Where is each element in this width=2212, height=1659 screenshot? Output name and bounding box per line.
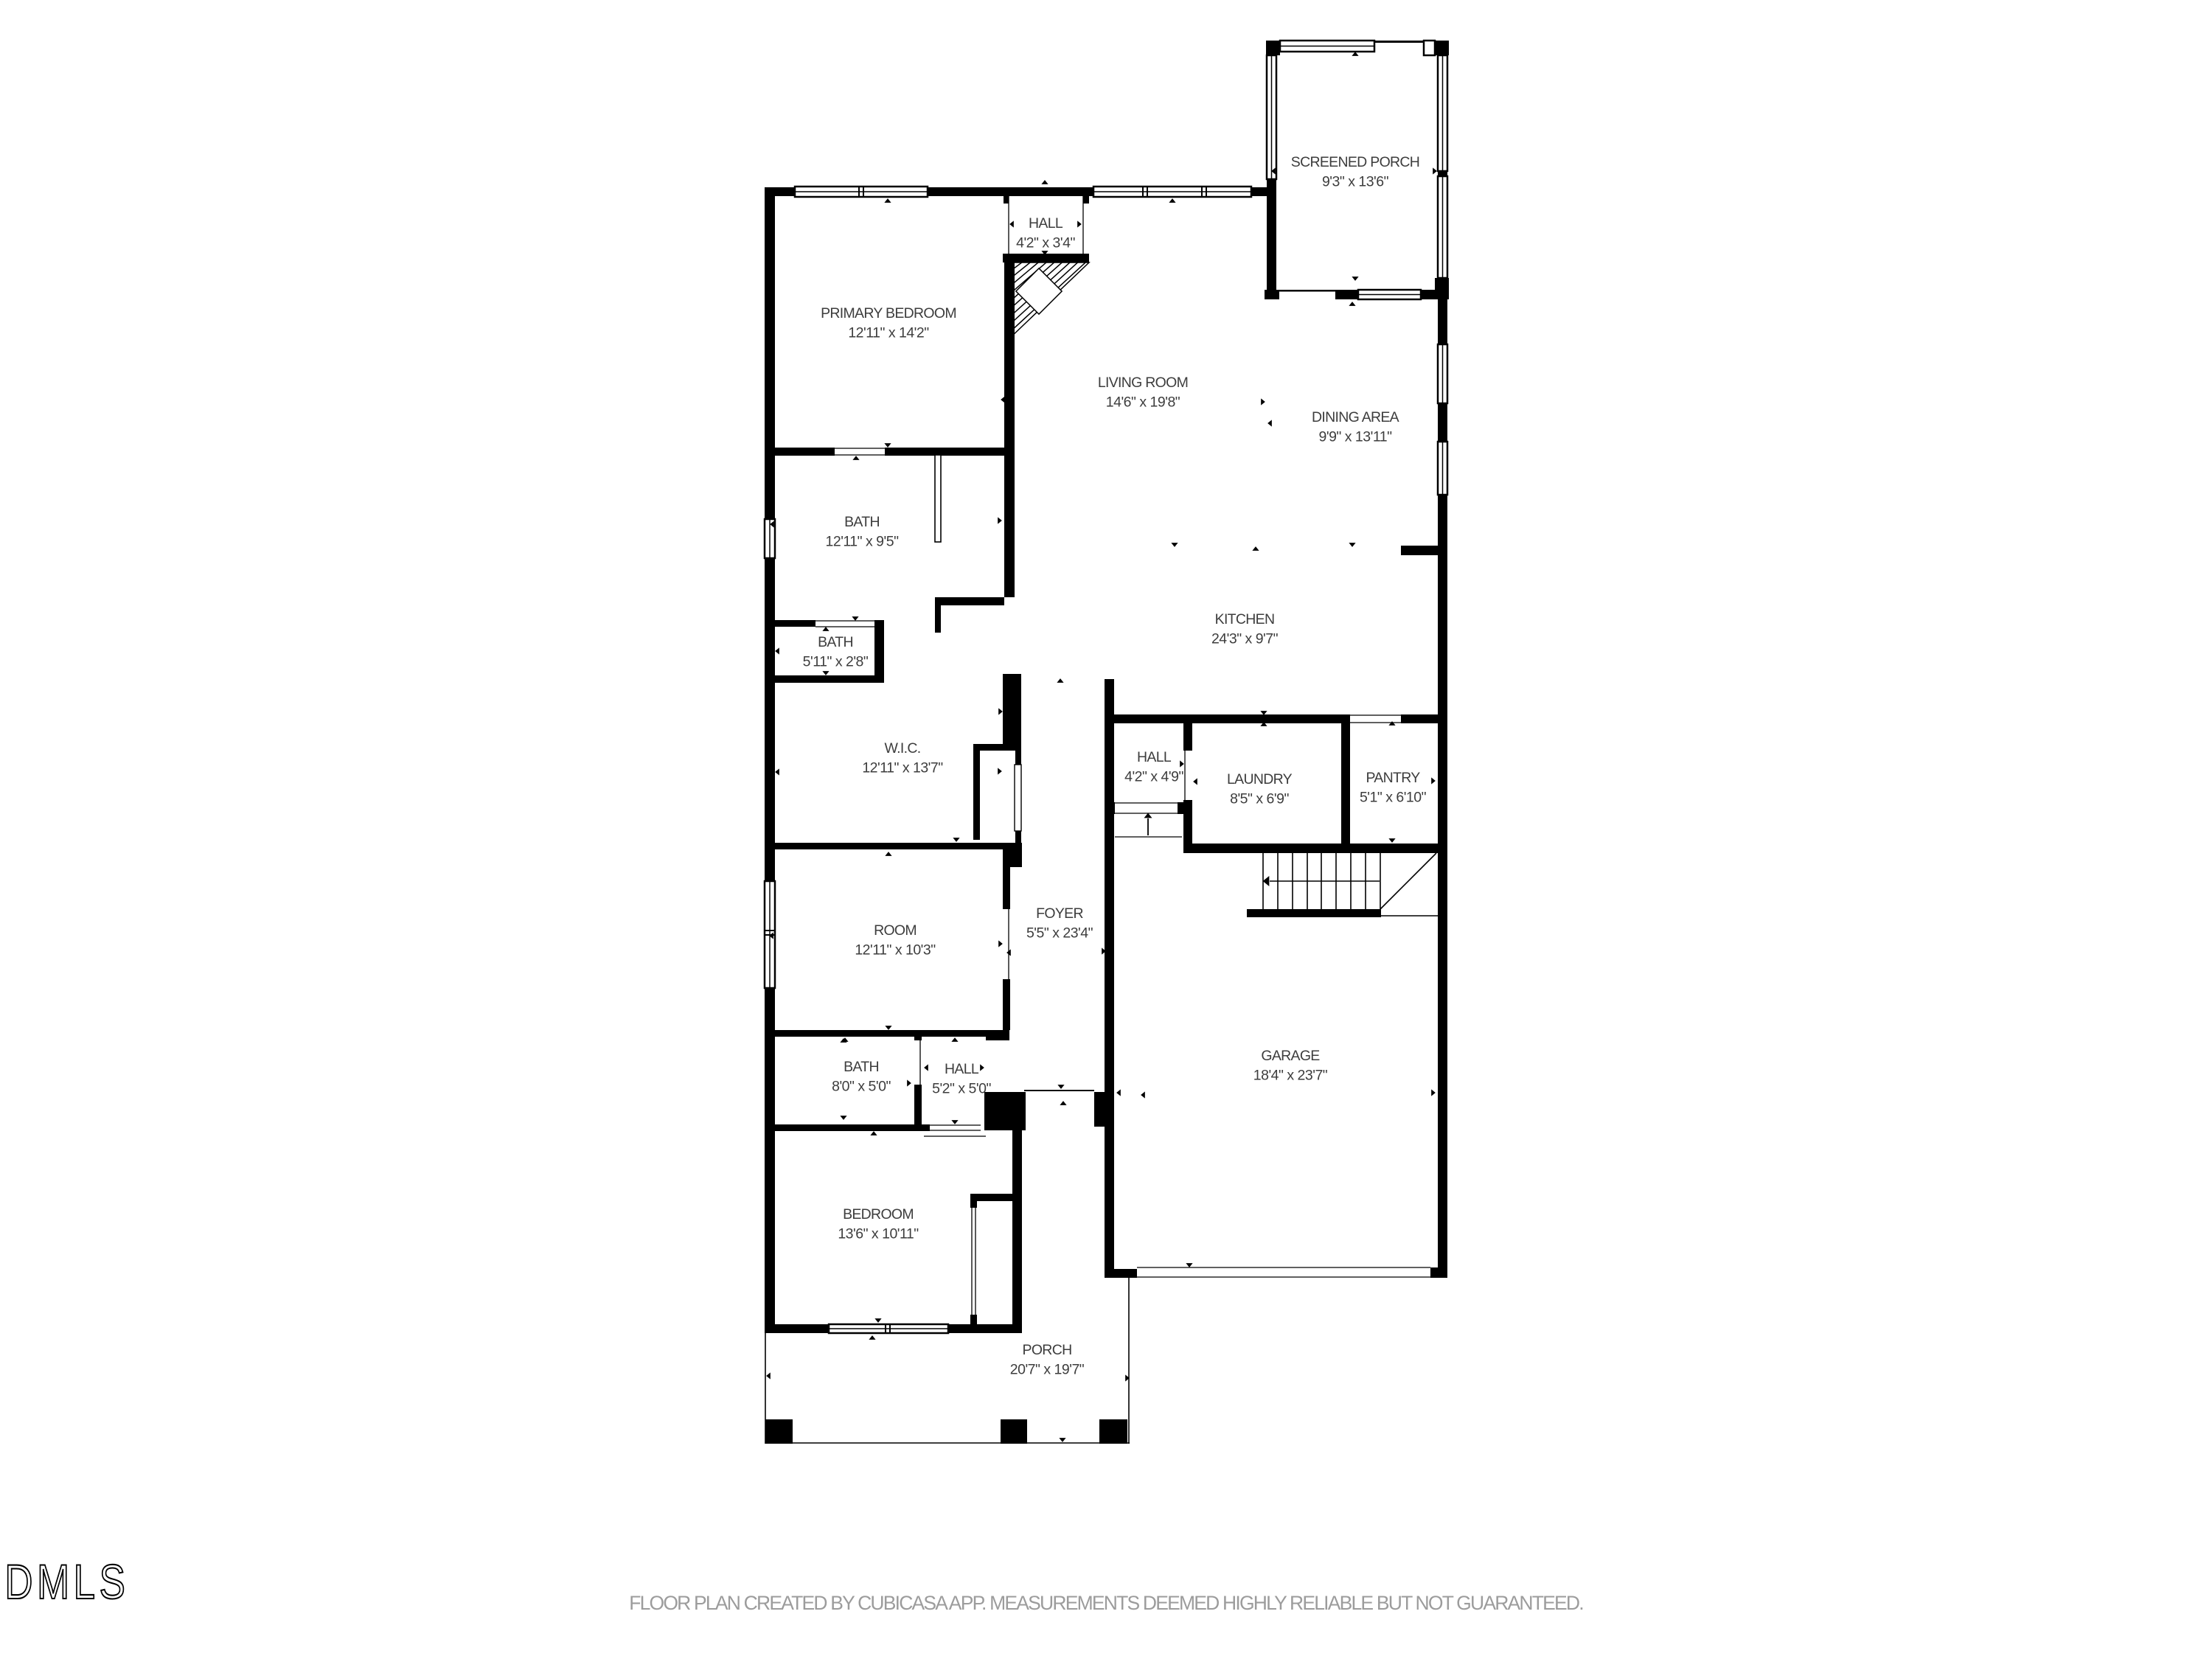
svg-text:BEDROOM: BEDROOM xyxy=(843,1206,914,1222)
svg-text:18'4" x 23'7": 18'4" x 23'7" xyxy=(1253,1068,1328,1084)
svg-text:BATH: BATH xyxy=(818,634,853,650)
svg-text:24'3" x 9'7": 24'3" x 9'7" xyxy=(1211,631,1279,647)
svg-text:DINING AREA: DINING AREA xyxy=(1312,409,1399,425)
svg-text:DMLS: DMLS xyxy=(4,1554,129,1609)
svg-text:PANTRY: PANTRY xyxy=(1366,770,1420,786)
svg-text:W.I.C.: W.I.C. xyxy=(885,740,921,757)
svg-text:BATH: BATH xyxy=(844,1059,879,1075)
svg-text:FLOOR PLAN CREATED BY CUBICASA: FLOOR PLAN CREATED BY CUBICASA APP. MEAS… xyxy=(629,1592,1583,1614)
svg-text:9'3" x 13'6": 9'3" x 13'6" xyxy=(1322,174,1389,190)
svg-text:ROOM: ROOM xyxy=(874,922,917,939)
svg-text:9'9" x 13'11": 9'9" x 13'11" xyxy=(1319,429,1393,445)
svg-text:12'11" x 14'2": 12'11" x 14'2" xyxy=(848,325,929,341)
svg-text:5'11" x 2'8": 5'11" x 2'8" xyxy=(803,654,869,670)
svg-text:5'5" x 23'4": 5'5" x 23'4" xyxy=(1026,925,1093,942)
svg-text:KITCHEN: KITCHEN xyxy=(1215,611,1275,627)
svg-text:8'0" x 5'0": 8'0" x 5'0" xyxy=(832,1079,891,1095)
svg-text:FOYER: FOYER xyxy=(1036,905,1083,922)
svg-text:LIVING ROOM: LIVING ROOM xyxy=(1098,375,1188,391)
svg-text:GARAGE: GARAGE xyxy=(1261,1048,1320,1064)
svg-text:LAUNDRY: LAUNDRY xyxy=(1227,771,1293,787)
svg-text:4'2" x 4'9": 4'2" x 4'9" xyxy=(1124,769,1183,785)
svg-text:PRIMARY BEDROOM: PRIMARY BEDROOM xyxy=(821,305,956,321)
svg-text:5'1" x 6'10": 5'1" x 6'10" xyxy=(1360,790,1427,806)
svg-text:20'7" x 19'7": 20'7" x 19'7" xyxy=(1010,1362,1085,1378)
svg-text:14'6" x 19'8": 14'6" x 19'8" xyxy=(1106,394,1180,411)
svg-text:PORCH: PORCH xyxy=(1023,1342,1072,1358)
svg-text:4'2" x 3'4": 4'2" x 3'4" xyxy=(1016,235,1075,251)
svg-text:12'11" x 10'3": 12'11" x 10'3" xyxy=(855,942,936,959)
svg-text:HALL: HALL xyxy=(1029,215,1063,232)
svg-text:5'2" x 5'0": 5'2" x 5'0" xyxy=(932,1081,991,1097)
svg-text:12'11" x 13'7": 12'11" x 13'7" xyxy=(862,760,943,776)
svg-text:HALL: HALL xyxy=(945,1061,979,1077)
svg-text:12'11" x 9'5": 12'11" x 9'5" xyxy=(826,534,900,550)
svg-text:13'6" x 10'11": 13'6" x 10'11" xyxy=(838,1226,919,1242)
svg-text:BATH: BATH xyxy=(844,514,880,530)
svg-text:HALL: HALL xyxy=(1137,749,1172,765)
svg-text:SCREENED PORCH: SCREENED PORCH xyxy=(1291,154,1419,170)
svg-text:8'5" x 6'9": 8'5" x 6'9" xyxy=(1230,791,1289,807)
